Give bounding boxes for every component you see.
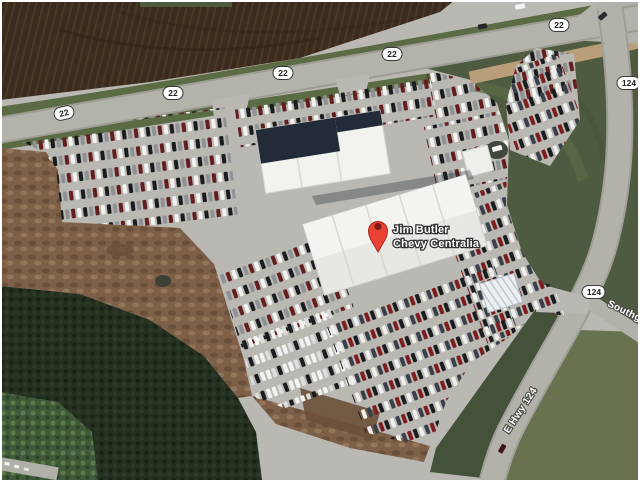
pin-label-line2: Chevy Centralia [393,238,480,250]
shield-label: 124 [587,287,601,297]
route-shield-22-d: 22 [382,48,402,61]
shield-label: 22 [278,68,288,78]
map-pin-hole [374,223,381,230]
satellite-map-canvas[interactable]: 22 22 22 22 22 124 124 Southgate E Hwy 1… [0,0,640,480]
route-shield-124-a: 124 [617,77,640,90]
frame-border-top [0,0,640,2]
route-shield-22-c: 22 [273,67,293,80]
satellite-imagery: 22 22 22 22 22 124 124 Southgate E Hwy 1… [0,0,640,480]
frame-border-left [0,0,2,480]
shield-label: 22 [168,88,178,98]
pond [155,275,171,287]
shield-label: 22 [554,20,564,30]
shield-label: 124 [622,78,636,88]
shield-label: 22 [387,49,397,59]
route-shield-22-e: 22 [549,19,569,32]
route-shield-124-b: 124 [582,286,605,299]
dirt-mound [106,244,134,256]
pin-label-line1: Jim Butler [393,224,449,236]
route-shield-22-b: 22 [163,87,183,100]
